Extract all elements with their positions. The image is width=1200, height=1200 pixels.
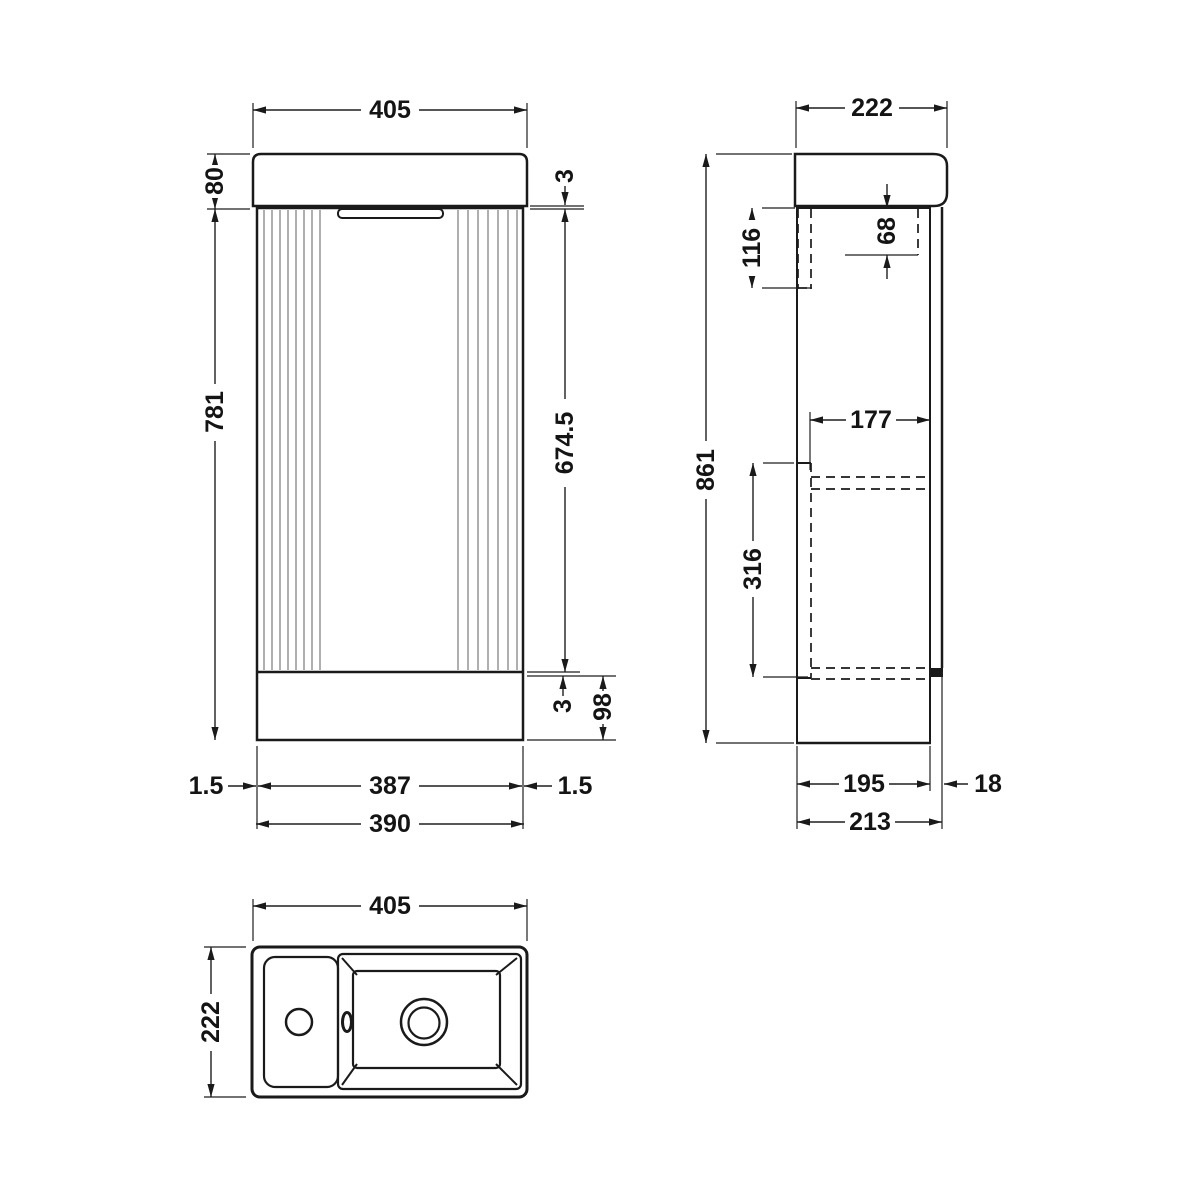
front-countertop bbox=[253, 154, 527, 206]
side-back-panel-height-label: 316 bbox=[739, 548, 767, 590]
front-width-top-label: 405 bbox=[369, 96, 411, 124]
side-countertop bbox=[795, 154, 947, 206]
plan-basin-chamfers bbox=[342, 958, 517, 1085]
side-carcass-depth-label: 195 bbox=[843, 770, 885, 798]
plan-dimensions: 405 222 bbox=[197, 892, 527, 1097]
front-bottom-gap-label: 3 bbox=[549, 699, 577, 713]
front-handle-recess bbox=[338, 209, 443, 218]
side-overall-depth-label: 213 bbox=[849, 808, 891, 836]
front-door-width-label: 387 bbox=[369, 772, 411, 800]
front-right-margin-label: 1.5 bbox=[558, 772, 593, 800]
front-top-gap-label: 3 bbox=[551, 169, 579, 183]
drawing-canvas: 405 80 781 3 674.5 3 98 387 bbox=[0, 0, 1200, 1200]
side-back-panel bbox=[797, 463, 811, 678]
side-rail-height-label: 68 bbox=[873, 217, 901, 245]
front-door-height-label: 674.5 bbox=[551, 412, 579, 475]
plan-overflow-hole bbox=[343, 1013, 352, 1032]
plan-basin-inner bbox=[353, 971, 500, 1068]
front-plinth-height-label: 98 bbox=[589, 693, 617, 721]
side-door-thickness-label: 18 bbox=[974, 770, 1002, 798]
plan-deck-area bbox=[264, 957, 338, 1087]
plan-tap-hole bbox=[286, 1009, 312, 1035]
side-view bbox=[795, 154, 947, 743]
front-carcass-width-label: 390 bbox=[369, 810, 411, 838]
side-depth-top-label: 222 bbox=[851, 94, 893, 122]
side-bracket-height-label: 116 bbox=[738, 228, 766, 268]
side-overall-height-label: 861 bbox=[692, 449, 720, 491]
front-view bbox=[253, 154, 527, 740]
side-shelf-depth-label: 177 bbox=[850, 406, 892, 434]
front-fluting-right bbox=[458, 210, 517, 670]
front-body-height-label: 781 bbox=[201, 391, 229, 433]
plan-width-label: 405 bbox=[369, 892, 411, 920]
plan-view bbox=[252, 947, 527, 1097]
side-wall-bracket-dashed bbox=[798, 209, 811, 289]
plan-depth-label: 222 bbox=[197, 1001, 225, 1043]
plan-countertop-outline bbox=[252, 947, 527, 1097]
side-shelf-dashed bbox=[811, 477, 930, 489]
plan-drain-inner bbox=[409, 1008, 440, 1039]
side-door-bottom-notch bbox=[930, 668, 943, 677]
front-fluting-left bbox=[264, 210, 320, 670]
front-left-margin-label: 1.5 bbox=[189, 772, 224, 800]
side-bottom-panel-dashed bbox=[811, 668, 930, 679]
front-countertop-height-label: 80 bbox=[201, 167, 229, 195]
front-cabinet-body bbox=[257, 208, 523, 740]
vanity-technical-drawing: 405 80 781 3 674.5 3 98 387 bbox=[0, 0, 1200, 1200]
